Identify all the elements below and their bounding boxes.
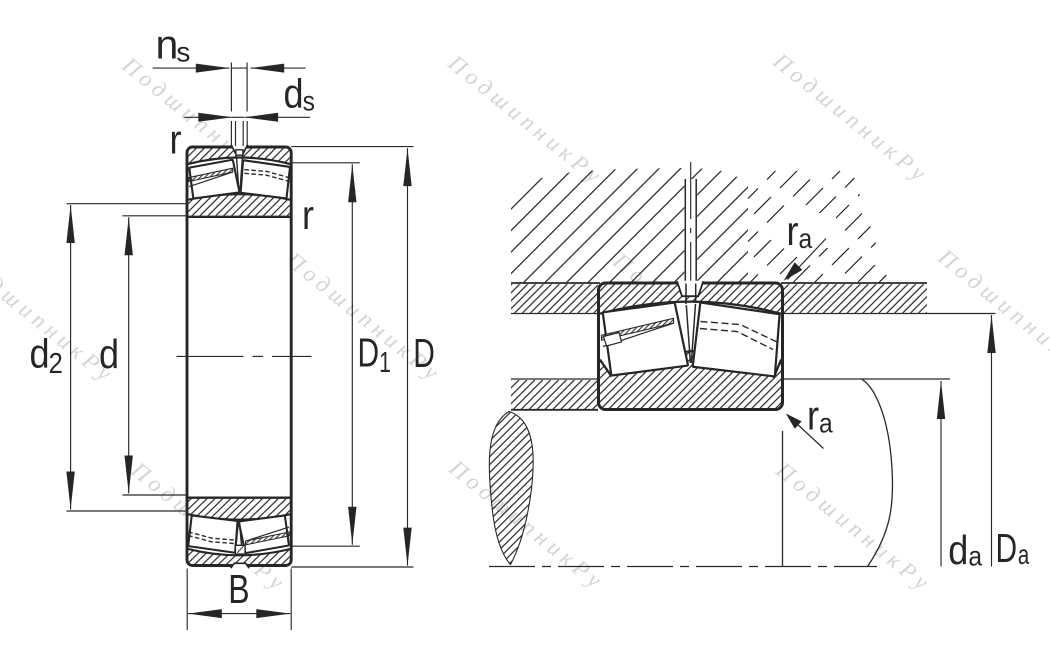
svg-text:r: r <box>170 117 182 163</box>
svg-text:D: D <box>413 330 435 376</box>
svg-text:d: d <box>99 332 119 378</box>
svg-text:B: B <box>228 566 249 612</box>
svg-text:r: r <box>302 193 314 239</box>
